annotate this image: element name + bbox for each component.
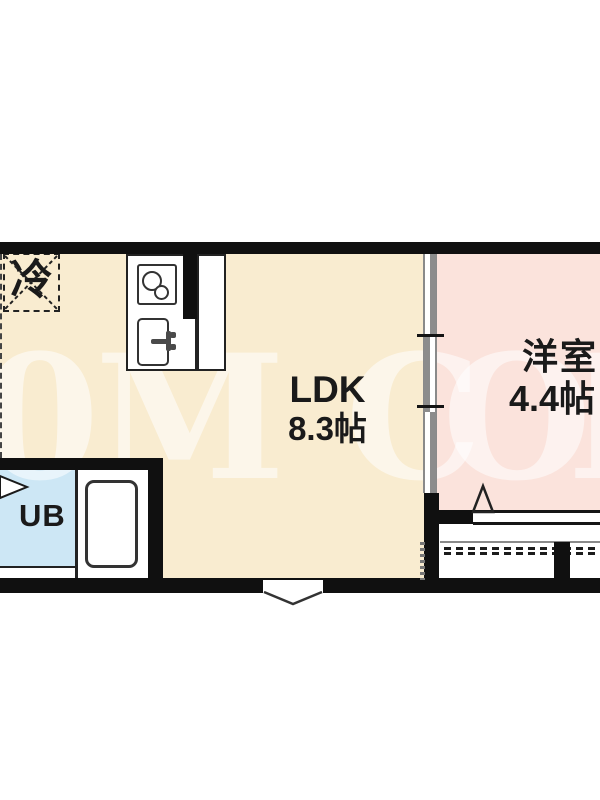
refrigerator-label: 冷 <box>3 259 60 301</box>
unit-bath-label: UB <box>19 500 66 531</box>
balcony-dashed-line <box>444 547 600 550</box>
bathroom-top-wall <box>0 458 163 470</box>
wall-top <box>0 242 600 254</box>
sliding-door-panel <box>424 336 430 412</box>
faucet-nub-bottom <box>170 344 176 350</box>
balcony-edge-hatch <box>420 542 425 580</box>
partition-lower-wall <box>424 493 439 593</box>
window-sill-wall <box>430 510 473 524</box>
bathroom-right-wall <box>148 458 163 593</box>
ldk-size: 8.3帖 <box>250 412 405 445</box>
ub-washroom-divider <box>75 470 78 580</box>
entrance-door-chevron <box>264 592 322 604</box>
entrance-gap <box>263 580 323 593</box>
door-track-tick <box>417 334 444 337</box>
western-room-label: 洋室 <box>522 339 598 375</box>
ldk-label: LDK <box>250 371 405 408</box>
sliding-window <box>473 510 600 525</box>
kitchen-pillar-wall <box>183 242 197 319</box>
floor-plan-page: { "floor_plan": { "rooms": { "ldk": { "l… <box>0 0 600 800</box>
sliding-door-panel <box>430 254 436 336</box>
faucet-nub-top <box>170 332 176 338</box>
kitchen-side-strip <box>197 254 226 371</box>
stove-burner-small <box>154 285 169 300</box>
balcony-dashed-line <box>444 552 600 555</box>
balcony-inner-line <box>440 541 600 543</box>
door-track-tick <box>417 405 444 408</box>
sliding-door-panel <box>430 412 436 493</box>
bathroom-fixture <box>85 480 138 568</box>
balcony-divider-wall <box>554 542 570 580</box>
sliding-door-track <box>423 254 437 493</box>
western-room-size: 4.4帖 <box>509 381 595 417</box>
